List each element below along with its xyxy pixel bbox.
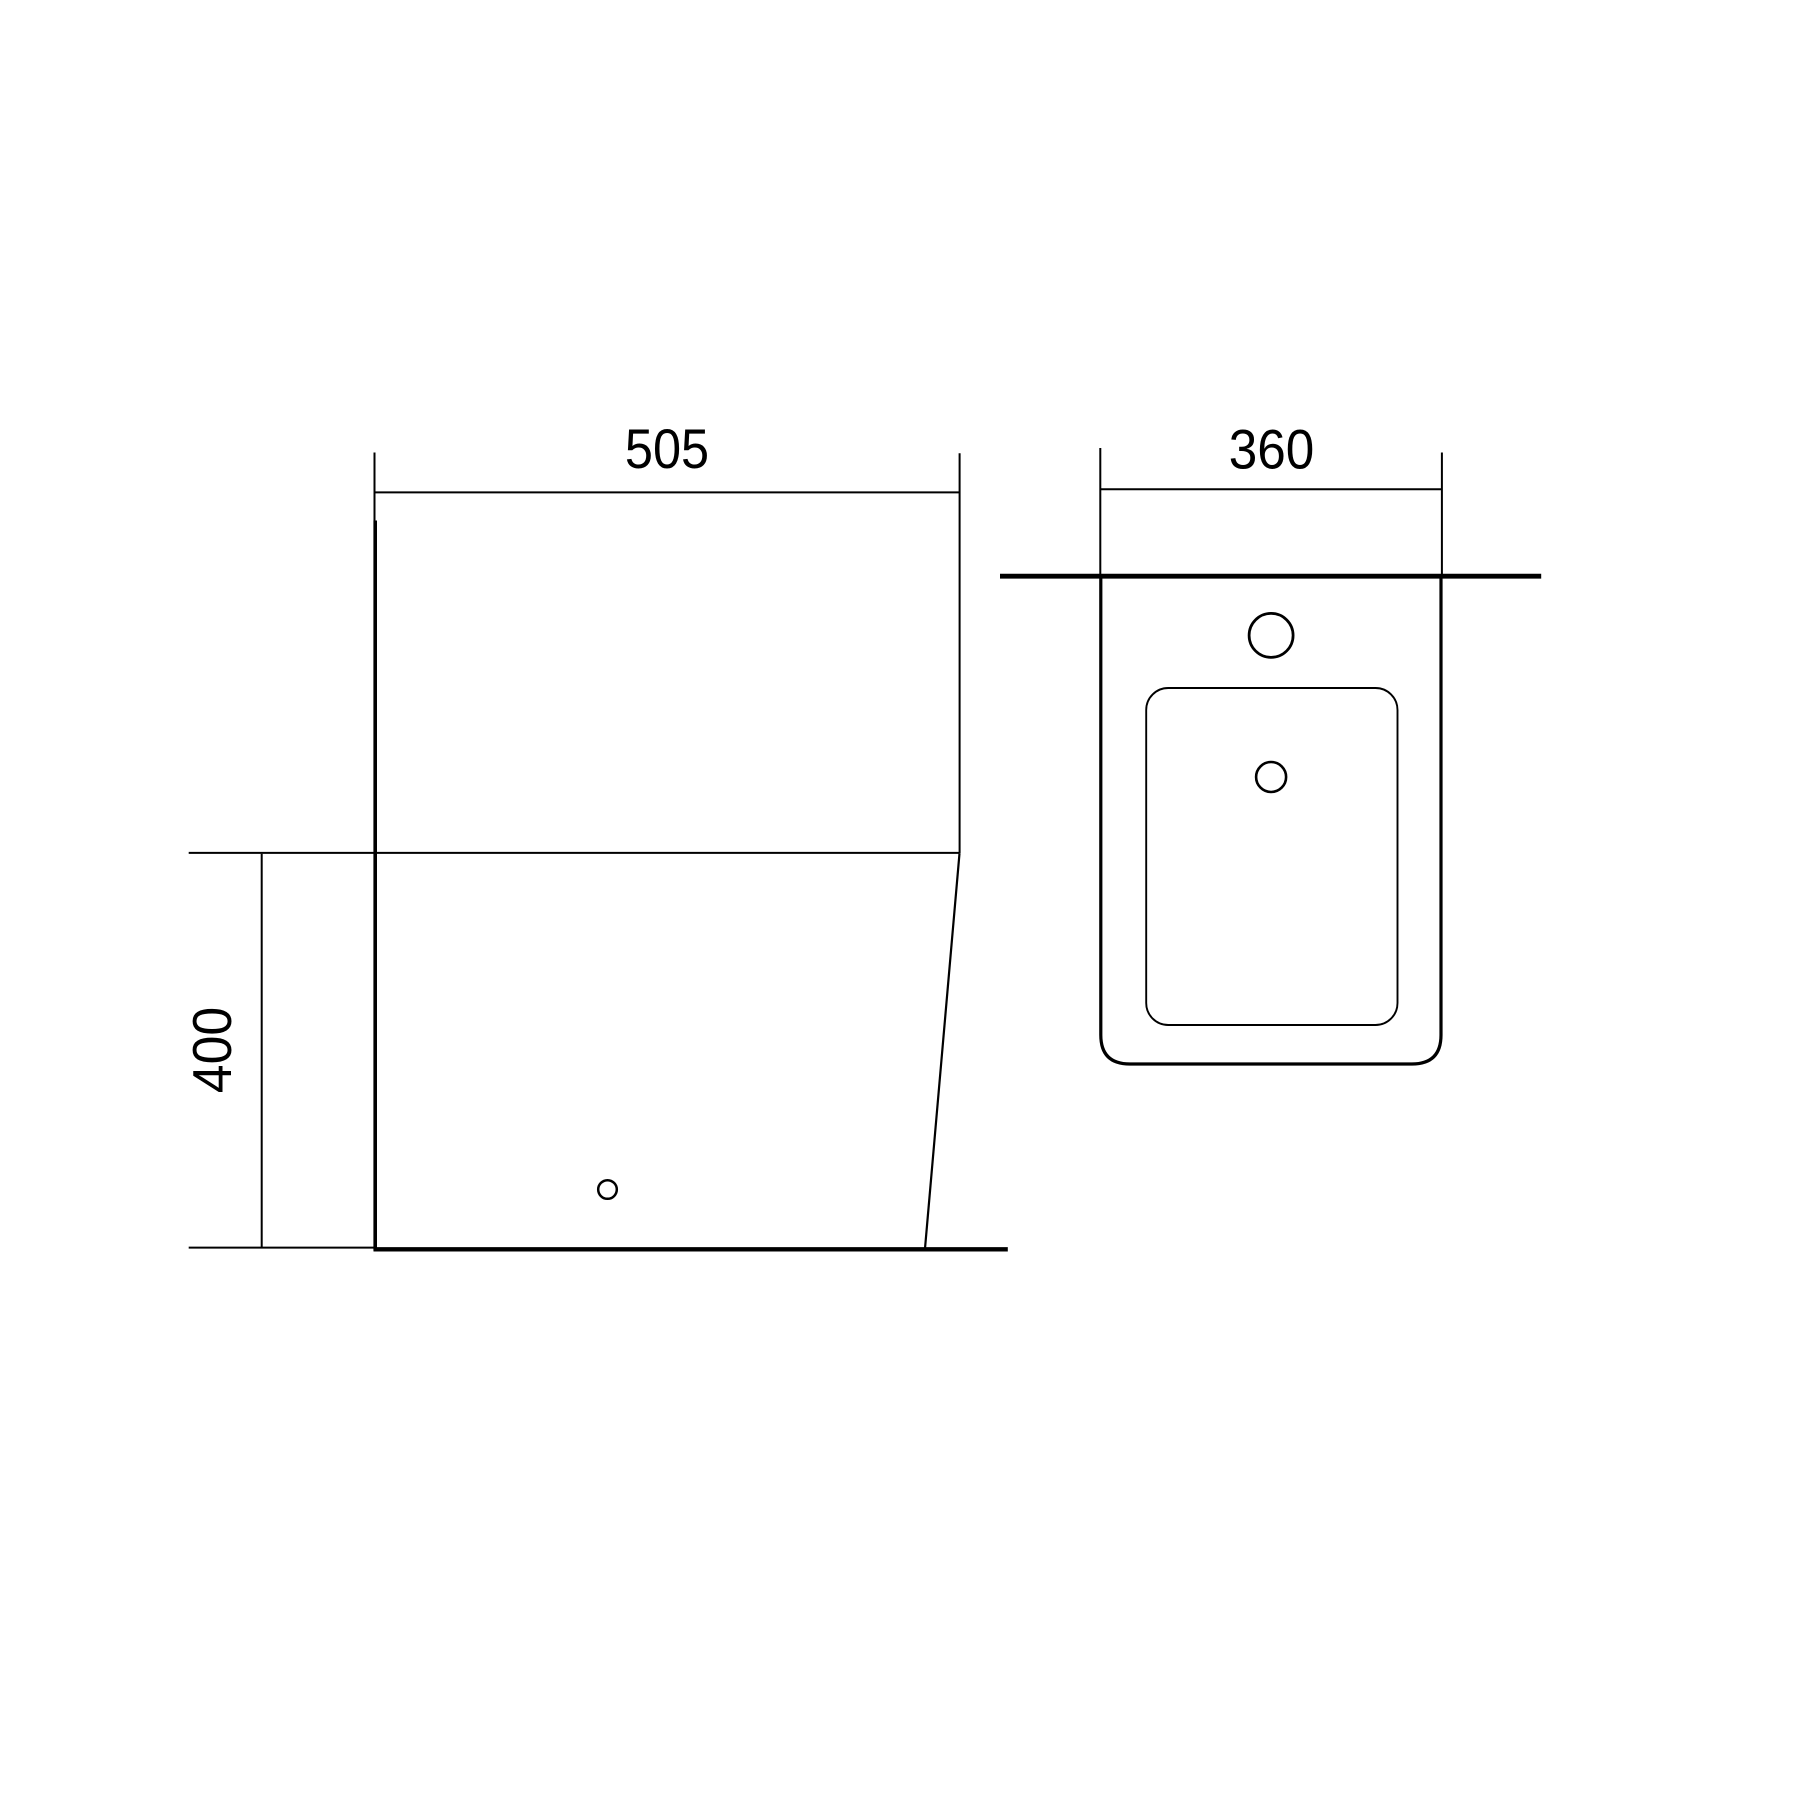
svg-text:360: 360: [1229, 418, 1315, 480]
svg-text:400: 400: [182, 1007, 243, 1093]
svg-text:505: 505: [625, 418, 709, 480]
